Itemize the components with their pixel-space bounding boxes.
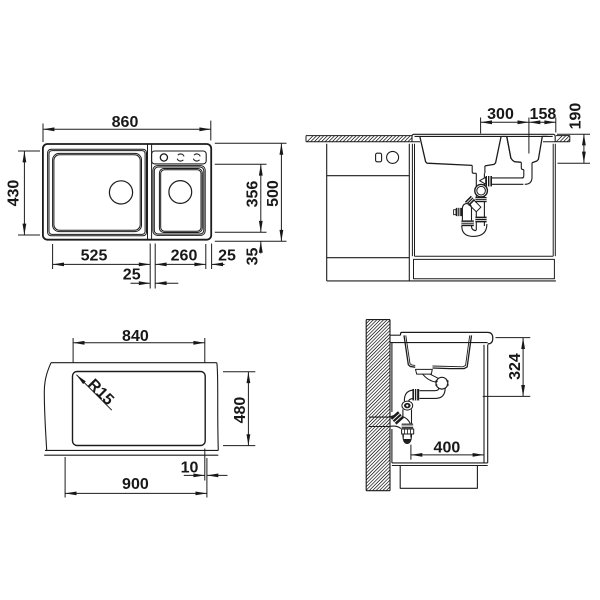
- svg-text:10: 10: [181, 459, 199, 476]
- svg-text:900: 900: [122, 476, 149, 493]
- svg-text:35: 35: [245, 248, 262, 266]
- svg-text:480: 480: [232, 397, 249, 424]
- svg-text:356: 356: [245, 181, 262, 208]
- svg-text:525: 525: [81, 247, 108, 264]
- svg-text:300: 300: [487, 106, 514, 123]
- svg-text:500: 500: [265, 180, 282, 207]
- svg-text:430: 430: [6, 180, 23, 207]
- svg-text:400: 400: [434, 440, 461, 457]
- svg-text:260: 260: [171, 247, 198, 264]
- svg-text:840: 840: [122, 328, 149, 345]
- svg-text:324: 324: [507, 353, 524, 380]
- svg-text:860: 860: [112, 114, 139, 131]
- svg-text:25: 25: [218, 247, 236, 264]
- svg-text:158: 158: [530, 106, 557, 123]
- svg-text:R15: R15: [84, 376, 117, 409]
- svg-text:25: 25: [123, 266, 141, 283]
- svg-text:190: 190: [568, 103, 585, 130]
